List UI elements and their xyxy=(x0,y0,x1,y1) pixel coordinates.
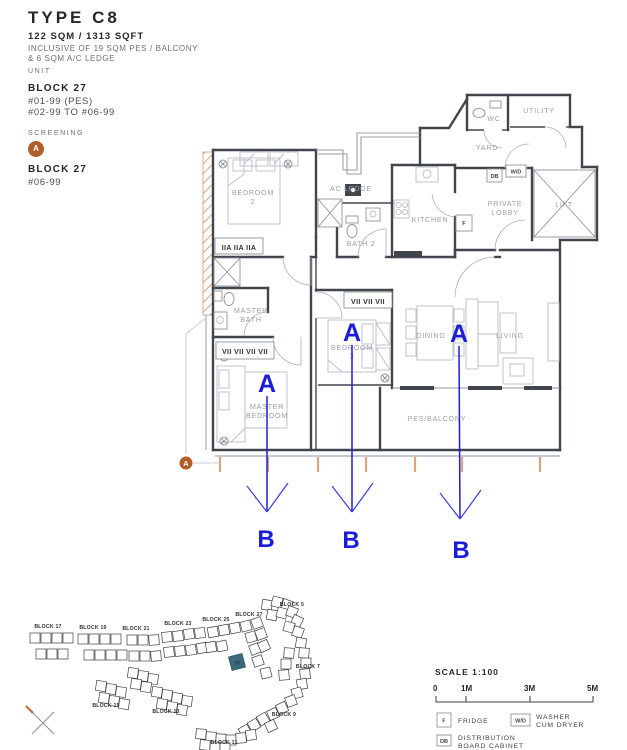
north-compass-icon xyxy=(26,706,54,734)
site-unit-square xyxy=(98,692,109,703)
site-unit-square xyxy=(251,617,264,630)
annotation-b-3: B xyxy=(452,537,469,564)
site-unit-square xyxy=(207,626,219,638)
site-unit-square xyxy=(216,640,228,652)
site-unit-square xyxy=(95,680,106,691)
site-unit-square xyxy=(245,729,256,740)
site-unit-square xyxy=(240,620,252,632)
legend-fridge-symbol: F xyxy=(442,719,446,725)
site-unit-square xyxy=(63,633,73,643)
site-block-11: BLOCK 11 xyxy=(211,740,238,746)
scale-tick-1m: 1M xyxy=(461,684,472,693)
site-unit-square xyxy=(151,686,162,697)
legend-db-symbol: DB xyxy=(440,739,448,745)
site-unit-square xyxy=(260,667,272,679)
site-unit-square xyxy=(106,650,116,660)
site-unit-square xyxy=(105,683,116,694)
site-unit-square xyxy=(115,686,126,697)
site-unit-square xyxy=(127,667,138,678)
legend-wd-label2: CUM DRYER xyxy=(536,722,584,729)
legend-db-label2: BOARD CABINET xyxy=(458,743,524,750)
site-unit-square xyxy=(138,635,148,645)
site-block-13: BLOCK 13 xyxy=(152,709,179,715)
site-unit-square xyxy=(162,632,173,643)
annotation-b-2: B xyxy=(342,527,359,554)
annotation-a-master: A xyxy=(258,370,276,398)
wd-box-label: W/D xyxy=(511,170,522,176)
site-unit-square xyxy=(205,641,217,653)
room-utility: UTILITY xyxy=(523,106,555,115)
svg-text:LOBBY: LOBBY xyxy=(491,208,518,217)
wardrobe-master: VII VII VII VII xyxy=(222,349,268,356)
site-block-23: BLOCK 23 xyxy=(164,621,191,627)
site-unit-square xyxy=(164,647,175,658)
room-dining: DINING xyxy=(416,331,445,340)
site-unit-square xyxy=(52,633,62,643)
fridge-box-label: F xyxy=(462,221,466,227)
legend: F FRIDGE W/D WASHER CUM DRYER DB DISTRIB… xyxy=(437,713,584,750)
room-living: LIVING xyxy=(496,331,524,340)
scale-bar: SCALE 1:100 0 1M 3M 5M xyxy=(433,667,598,702)
site-unit-square xyxy=(140,681,151,692)
site-unit-square xyxy=(151,651,162,662)
annotation-a-bedroom3: A xyxy=(343,319,361,347)
wardrobe-bedroom3: VII VII VII xyxy=(351,299,385,306)
legend-wd-label1: WASHER xyxy=(536,714,570,721)
site-unit-square xyxy=(295,637,307,649)
site-unit-square xyxy=(84,650,94,660)
site-block-25: BLOCK 25 xyxy=(202,617,229,623)
plan-canvas: DB W/D F xyxy=(0,0,627,750)
room-pes-balcony: PES/BALCONY xyxy=(408,414,466,423)
pes-fence-posts xyxy=(220,457,540,472)
site-unit-square xyxy=(156,698,167,709)
site-unit-square xyxy=(149,635,160,646)
site-unit-square xyxy=(196,729,207,740)
scale-tick-5m: 5M xyxy=(587,684,598,693)
site-plan-highlighted-unit: 99 xyxy=(228,653,245,670)
scale-label: SCALE 1:100 xyxy=(435,667,499,677)
site-unit-square xyxy=(218,624,230,636)
room-ac-ledge: AC LEDGE xyxy=(330,184,372,193)
site-block-9: BLOCK 9 xyxy=(272,712,296,718)
site-unit-square xyxy=(100,634,110,644)
site-block-5: BLOCK 5 xyxy=(280,602,304,608)
room-lift: LIFT xyxy=(555,200,573,209)
wardrobe-bedroom2: IIA IIA IIA xyxy=(222,245,257,252)
site-unit-square xyxy=(78,634,88,644)
svg-text:BATH: BATH xyxy=(240,315,261,324)
annotation-a-dining: A xyxy=(450,320,468,348)
room-wc: WC xyxy=(487,114,500,123)
room-kitchen: KITCHEN xyxy=(412,215,448,224)
site-block-15: BLOCK 15 xyxy=(92,703,119,709)
legend-fridge-label: FRIDGE xyxy=(458,718,488,725)
site-unit-square xyxy=(229,622,241,634)
site-unit-square xyxy=(200,740,211,750)
site-block-7: BLOCK 7 xyxy=(296,664,320,670)
site-unit-square xyxy=(89,634,99,644)
site-block-21: BLOCK 21 xyxy=(122,626,149,632)
site-unit-square xyxy=(252,655,265,668)
site-unit-square xyxy=(183,628,194,639)
site-unit-square xyxy=(47,649,57,659)
legend-wd-symbol: W/D xyxy=(515,719,526,725)
room-bedroom2: BEDROOM xyxy=(232,188,274,197)
site-block-27: BLOCK 27 xyxy=(235,612,262,618)
screening-hatch-strip xyxy=(186,152,220,463)
annotation-b-1: B xyxy=(257,526,274,553)
site-plan: 99 BLOCK 17 BLOCK 19 BLOCK 21 BLOCK 23 B… xyxy=(26,596,320,750)
site-unit-square xyxy=(41,633,51,643)
room-labels: BEDROOM 2 AC LEDGE BATH 2 KITCHEN YARD W… xyxy=(232,106,573,423)
site-unit-square xyxy=(140,651,150,661)
site-unit-square xyxy=(30,633,40,643)
site-block-19: BLOCK 19 xyxy=(79,625,106,631)
floor-plan-page: TYPE C8 122 SQM / 1313 SQFT INCLUSIVE OF… xyxy=(0,0,627,750)
db-box-label: DB xyxy=(490,174,498,180)
scale-tick-3m: 3M xyxy=(524,684,535,693)
scale-tick-0: 0 xyxy=(433,684,438,693)
room-yard: YARD xyxy=(476,143,498,152)
site-unit-square xyxy=(279,670,290,681)
site-unit-square xyxy=(194,627,205,638)
site-unit-square xyxy=(95,650,105,660)
site-unit-square xyxy=(118,698,129,709)
site-unit-square xyxy=(58,649,68,659)
site-unit-square xyxy=(299,648,310,659)
site-unit-square xyxy=(185,644,196,655)
room-bath2: BATH 2 xyxy=(347,239,376,248)
site-unit-square xyxy=(284,648,295,659)
legend-db-label1: DISTRIBUTION xyxy=(458,735,516,742)
room-master-bath: MASTER xyxy=(234,306,268,315)
site-unit-square xyxy=(129,651,139,661)
site-block-17: BLOCK 17 xyxy=(34,624,61,630)
site-unit-square xyxy=(281,659,291,669)
site-unit-square xyxy=(111,634,121,644)
site-unit-square xyxy=(36,649,46,659)
svg-text:2: 2 xyxy=(251,197,256,206)
site-unit-square xyxy=(300,669,311,680)
site-unit-square xyxy=(117,650,127,660)
door-arcs xyxy=(244,127,566,365)
site-unit-square xyxy=(175,646,186,657)
room-private-lobby: PRIVATE xyxy=(488,199,523,208)
site-unit-square xyxy=(173,631,184,642)
site-unit-square xyxy=(130,678,141,689)
svg-text:A: A xyxy=(183,459,189,468)
site-unit-square xyxy=(127,635,137,645)
